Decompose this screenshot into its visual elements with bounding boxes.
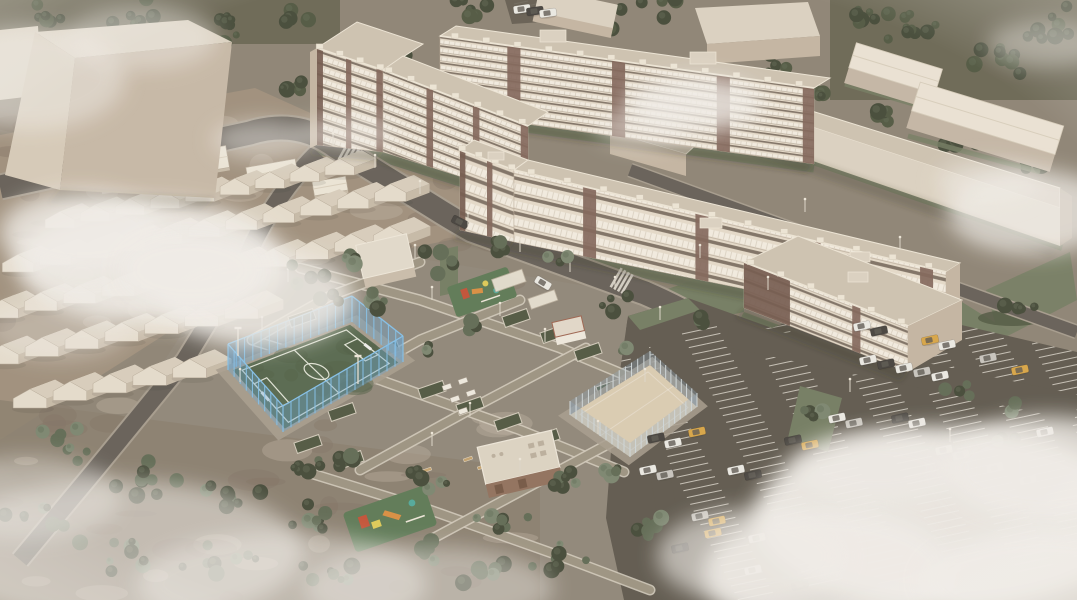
render-canvas xyxy=(0,0,1077,600)
architectural-render xyxy=(0,0,1077,600)
color-grade xyxy=(0,0,1077,600)
